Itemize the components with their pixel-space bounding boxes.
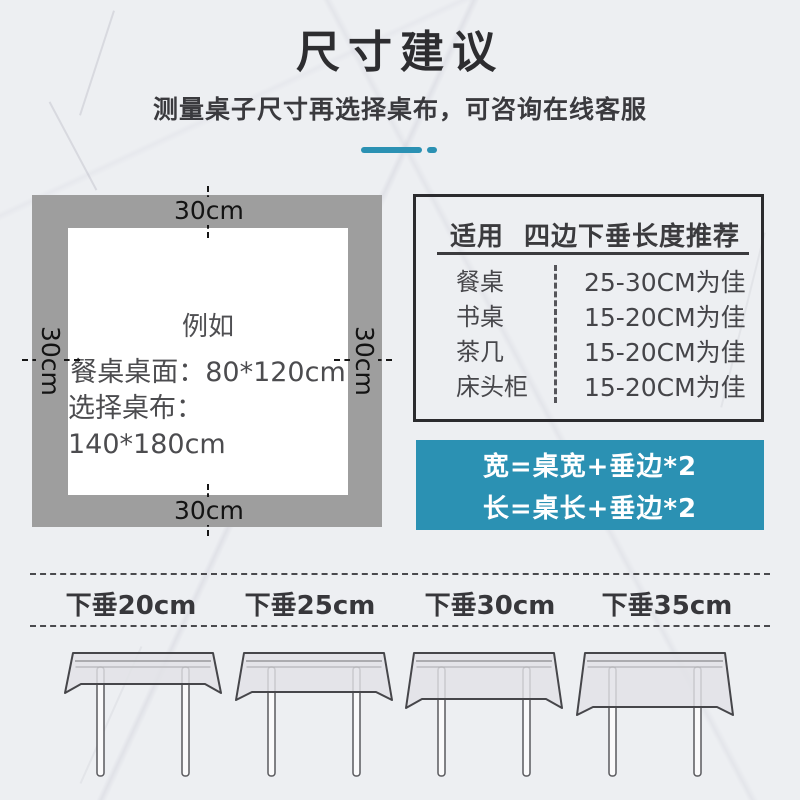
row-recommendation: 15-20CM为佳: [584, 370, 746, 405]
divider-dot: [427, 147, 437, 153]
row-use-label: 书桌: [456, 300, 504, 335]
page-title: 尺寸建议: [0, 16, 800, 80]
section-dashed-line-top: [30, 573, 770, 575]
size-guide-infographic: 尺寸建议 测量桌子尺寸再选择桌布，可咨询在线客服 例如 餐桌桌面：80*120c…: [0, 0, 800, 800]
drop-example-label-30cm: 下垂30cm: [420, 585, 560, 622]
row-use-label: 茶几: [456, 335, 504, 370]
example-table-size: 餐桌桌面：80*120cm: [70, 355, 346, 391]
table-illustration-drop-30cm: [404, 647, 564, 779]
formula-box: 宽=桌宽+垂边*2 长=桌长+垂边*2: [416, 440, 764, 530]
table-row: 茶几 15-20CM为佳: [416, 335, 761, 370]
tabletop-area: 例如 餐桌桌面：80*120cm 选择桌布：140*180cm: [68, 228, 348, 495]
recommendation-table: 适用 四边下垂长度推荐 餐桌 25-30CM为佳 书桌 15-20CM为佳 茶几…: [413, 194, 764, 422]
row-use-label: 餐桌: [456, 265, 504, 300]
table-illustration-drop-35cm: [575, 647, 735, 779]
accent-divider: [0, 147, 800, 153]
table-illustration-drop-25cm: [234, 647, 394, 779]
header-col-drop: 四边下垂长度推荐: [524, 216, 740, 253]
row-recommendation: 25-30CM为佳: [584, 265, 746, 300]
table-row: 床头柜 15-20CM为佳: [416, 370, 761, 405]
drop-example-label-35cm: 下垂35cm: [597, 585, 737, 622]
table-row: 书桌 15-20CM为佳: [416, 300, 761, 335]
table-row: 餐桌 25-30CM为佳: [416, 265, 761, 300]
drop-example-label-20cm: 下垂20cm: [61, 585, 201, 622]
header-underline: [437, 252, 749, 255]
divider-line: [361, 147, 422, 153]
recommendation-rows: 餐桌 25-30CM为佳 书桌 15-20CM为佳 茶几 15-20CM为佳 床…: [416, 265, 761, 405]
tablecloth-drop-diagram: 例如 餐桌桌面：80*120cm 选择桌布：140*180cm 30cm 30c…: [32, 195, 382, 527]
right-drop-label: 30cm: [350, 326, 378, 394]
recommendation-header: 适用 四边下垂长度推荐: [450, 216, 740, 253]
page-subtitle: 测量桌子尺寸再选择桌布，可咨询在线客服: [0, 90, 800, 126]
bottom-drop-label: 30cm: [174, 497, 242, 525]
row-recommendation: 15-20CM为佳: [584, 300, 746, 335]
example-title: 例如: [182, 306, 234, 343]
row-use-label: 床头柜: [456, 370, 528, 405]
row-recommendation: 15-20CM为佳: [584, 335, 746, 370]
section-dashed-line-bottom: [30, 625, 770, 627]
drop-example-label-25cm: 下垂25cm: [240, 585, 380, 622]
left-drop-label: 30cm: [36, 326, 64, 394]
header-col-use: 适用: [450, 216, 504, 253]
table-illustration-drop-20cm: [63, 647, 223, 779]
example-cloth-size: 选择桌布：140*180cm: [68, 391, 348, 463]
top-drop-label: 30cm: [174, 197, 242, 225]
length-formula: 长=桌长+垂边*2: [483, 488, 697, 525]
width-formula: 宽=桌宽+垂边*2: [483, 446, 697, 483]
